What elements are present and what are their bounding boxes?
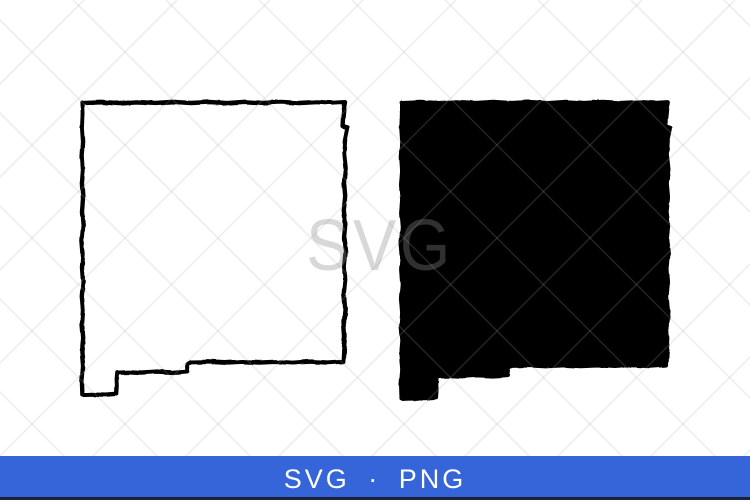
new-mexico-filled-map (392, 92, 682, 412)
product-preview: SVG SVG · PNG (0, 0, 750, 500)
footer-bar: SVG · PNG (0, 456, 750, 500)
footer-format-label: SVG · PNG (0, 456, 750, 497)
new-mexico-outline-map (73, 92, 359, 408)
